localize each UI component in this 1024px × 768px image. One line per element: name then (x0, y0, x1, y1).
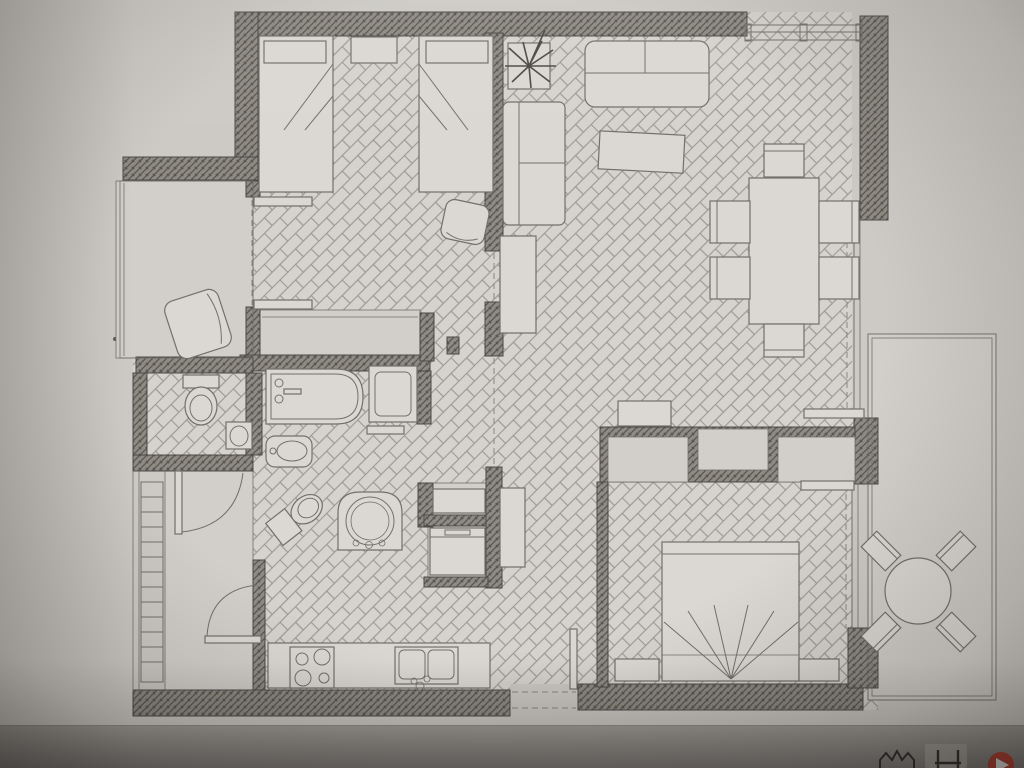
kitchen (268, 643, 490, 690)
terrace-right-floor (868, 334, 996, 700)
dining-chair (710, 201, 750, 243)
appliance (430, 528, 485, 575)
dining-chair (710, 257, 750, 299)
appliance (433, 489, 485, 513)
hall-cabinet (618, 401, 671, 426)
floor-plan-photo (0, 0, 1024, 768)
hob (290, 647, 334, 688)
dining-chair (819, 201, 859, 243)
photographed-screen (0, 0, 1024, 768)
single-bed (259, 36, 333, 192)
wardrobe-wall (600, 427, 855, 482)
dining-chair (764, 144, 804, 177)
toilet (183, 375, 219, 425)
vanity-sink (338, 492, 402, 550)
dining-chair (819, 257, 859, 299)
double-bed (662, 542, 799, 681)
round-table (885, 558, 951, 624)
foot-bench (615, 659, 659, 681)
single-bed (419, 36, 493, 192)
taskbar-strip (0, 726, 1024, 768)
sofa (585, 41, 709, 107)
taskbar-button[interactable] (925, 744, 967, 768)
loveseat (503, 102, 565, 225)
double-sink (395, 647, 458, 690)
shower-tray (369, 366, 417, 422)
dining-chair (764, 324, 804, 357)
foot-bench (799, 659, 839, 681)
sliding-door-bar (801, 481, 854, 490)
hall-sideboard (500, 488, 525, 567)
bidet (266, 436, 312, 467)
tall-cabinet (500, 236, 536, 333)
sliding-door-bar (804, 409, 864, 418)
tv-bench (598, 131, 685, 173)
washbasin (226, 422, 252, 449)
bathroom-door-bar (367, 426, 404, 434)
sliding-door-bar (254, 197, 312, 206)
nightstand (351, 37, 397, 63)
bathtub (266, 369, 363, 424)
dining-table (749, 178, 819, 324)
sliding-door-bar (254, 300, 312, 309)
desk-chair (439, 198, 490, 246)
